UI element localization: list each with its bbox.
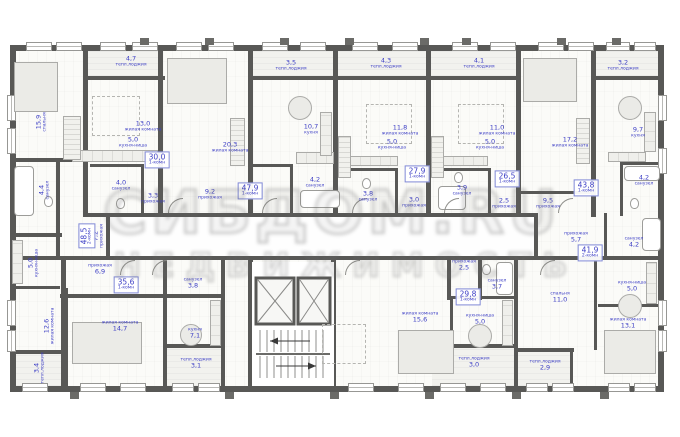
room-label: 12,6жилая комната [44, 308, 57, 345]
room-name: жилая комната [125, 128, 162, 133]
room-name: прихожая [536, 205, 560, 210]
wall-stub [425, 392, 434, 399]
wall [333, 76, 431, 80]
apartment-type: 1-комн [409, 176, 426, 181]
room-label: спальня11,0 [550, 292, 569, 305]
apartment-area-badge: 43,81-комн [574, 179, 599, 196]
window [100, 42, 126, 51]
apartment-type: 2-комн [89, 228, 94, 245]
room-label: 4,2санузел [306, 177, 325, 190]
room-label: 5,0кухня-ниша [119, 137, 147, 150]
kitchen-counter [210, 300, 221, 346]
room-label: 10,7кухня [304, 124, 318, 137]
room-area: 5,0 [466, 319, 494, 326]
wall [426, 45, 431, 217]
room-area: 2,5 [452, 265, 476, 272]
room-name: кухня-ниша [378, 146, 406, 151]
room-area: 3,5 [275, 60, 306, 67]
room-label: жилая комната13,1 [610, 318, 647, 331]
wall [534, 213, 538, 260]
window [22, 383, 48, 392]
room-area: 15,6 [402, 317, 439, 324]
window [526, 383, 548, 392]
bathtub [642, 218, 661, 251]
bathtub [300, 190, 340, 208]
room-area: 2,5 [492, 198, 516, 205]
room-label: 15,9спальня [36, 112, 49, 131]
bed-outline [322, 324, 366, 364]
room-name: санузел [635, 182, 654, 187]
kitchen-counter [646, 262, 657, 304]
wall [83, 45, 88, 217]
bed [167, 58, 227, 104]
room-label: 4,1тепл.лоджия [463, 58, 494, 71]
room-label: кухня-ниша5,0 [466, 314, 494, 327]
wall-stub [600, 392, 609, 399]
room-label: 3,3прихожая [141, 193, 165, 206]
room-name: тепл.лоджия [275, 67, 306, 72]
room-name: санузел [306, 184, 325, 189]
wall [163, 260, 167, 388]
wall-stub [345, 38, 354, 45]
wall [395, 168, 398, 216]
room-label: жилая комната14,7 [102, 321, 139, 334]
room-area: 2,9 [529, 365, 560, 372]
wall-stub [140, 38, 149, 45]
window [348, 383, 374, 392]
room-name: жилая комната [51, 308, 56, 345]
room-area: 4,2 [625, 242, 644, 249]
room-name: тепл.лоджия [463, 65, 494, 70]
wardrobe [63, 116, 81, 160]
room-name: прихожая [198, 196, 222, 201]
room-area: 11,0 [479, 125, 516, 132]
window [120, 383, 146, 392]
window [634, 42, 656, 51]
wall [106, 213, 110, 260]
room-name: санузел [453, 192, 472, 197]
room-label: кухня-ниша5,0 [618, 281, 646, 294]
room-label: 3,5тепл.лоджия [275, 60, 306, 73]
room-label: кухня7,1 [188, 328, 202, 341]
kitchen-counter [320, 112, 332, 156]
room-area: 4,4 [39, 181, 46, 200]
toilet [630, 198, 639, 209]
wall [514, 256, 518, 388]
room-label: 5,0кухня-ниша [28, 249, 41, 277]
room-area: 15,9 [36, 112, 43, 131]
room-name: прихожая [492, 205, 516, 210]
room-area: 4,2 [306, 177, 325, 184]
apartment-area-badge: 47,91-комн [238, 182, 263, 199]
room-name: кухня-ниша [119, 144, 147, 149]
room-label: 5,0кухня-ниша [378, 139, 406, 152]
room-area: 7,1 [188, 333, 202, 340]
room-area: 4,0 [112, 180, 131, 187]
room-area: 11,0 [550, 297, 569, 304]
room-name: тепл.лоджия [607, 67, 638, 72]
window [634, 383, 656, 392]
apartment-type: 1-комн [578, 190, 595, 195]
room-label: 13,0жилая комната [125, 121, 162, 134]
wall [253, 164, 293, 167]
room-label: прихожая6,9 [88, 264, 112, 277]
room-label: жилая комната15,6 [402, 312, 439, 325]
room-area: 3,4 [34, 352, 41, 383]
wall-stub [557, 38, 566, 45]
wall [516, 348, 574, 352]
window [352, 42, 378, 51]
room-area: 13,0 [125, 121, 162, 128]
room-label: 3,4тепл.лоджия [34, 352, 47, 383]
room-area: 3,8 [359, 191, 378, 198]
room-name: санузел [112, 187, 131, 192]
room-label: 9,7кухня [631, 127, 645, 140]
room-area: 20,3 [212, 142, 249, 149]
bathtub [14, 166, 34, 216]
wall-stub [205, 38, 214, 45]
room-area: 3,7 [488, 284, 507, 291]
wall [60, 294, 165, 298]
bed [523, 58, 577, 102]
window [440, 383, 466, 392]
window [392, 42, 418, 51]
dining-table [618, 96, 642, 120]
window [608, 383, 630, 392]
apartment-area-badge: 27,91-комн [405, 165, 430, 182]
room-area: 3,1 [180, 363, 211, 370]
apartment-area-badge: 35,61-комн [114, 276, 139, 293]
room-label: тепл.лоджия2,9 [529, 360, 560, 373]
room-area: 5,0 [378, 139, 406, 146]
wall-stub [462, 38, 471, 45]
wall [56, 158, 60, 257]
room-name: прихожая [100, 224, 105, 248]
window [658, 300, 667, 326]
room-label: 4,7тепл.лоджия [115, 56, 146, 69]
room-label: 3,9санузел [453, 185, 472, 198]
wall [61, 256, 66, 388]
window [26, 42, 52, 51]
corridor-area [110, 217, 534, 256]
apartment-type: 1-комн [242, 193, 259, 198]
bed [398, 330, 454, 374]
room-name: прихожая [141, 200, 165, 205]
dining-table [468, 324, 492, 348]
room-area: 3,2 [607, 60, 638, 67]
kitchen-counter [12, 240, 23, 284]
room-area: 4,7 [115, 56, 146, 63]
room-name: кухня [304, 131, 318, 136]
wall [604, 213, 607, 260]
wall-stub [512, 392, 521, 399]
room-area: 6,9 [88, 269, 112, 276]
room-name: жилая комната [479, 132, 516, 137]
wall [83, 76, 165, 80]
room-label: 9,2прихожая [198, 189, 222, 202]
room-area: 5,7 [564, 237, 588, 244]
room-label: 9,5прихожая [536, 198, 560, 211]
wall [620, 162, 623, 216]
room-name: санузел [46, 181, 51, 200]
room-area: 4,2 [635, 175, 654, 182]
kitchen-counter [608, 152, 646, 162]
apartment-area-badge: 30,01-комн [145, 151, 170, 168]
room-label: санузел4,2 [625, 237, 644, 250]
wall [591, 76, 662, 80]
room-label: 2,5прихожая [492, 198, 516, 211]
room-name: жилая комната [382, 132, 419, 137]
wall [83, 213, 538, 217]
apartment-type: 1-комн [499, 181, 516, 186]
window [568, 42, 594, 51]
room-area: 5,0 [119, 137, 147, 144]
toilet [116, 198, 125, 209]
toilet [362, 178, 371, 189]
window [480, 383, 506, 392]
bed [14, 62, 58, 112]
wardrobe [338, 136, 351, 178]
room-area: 3,3 [141, 193, 165, 200]
room-name: спальня [43, 112, 48, 131]
room-label: 11,8жилая комната [382, 125, 419, 138]
room-label: 17,2жилая комната [552, 137, 589, 150]
room-area: 4,3 [370, 58, 401, 65]
room-area: 3,0 [458, 362, 489, 369]
room-name: тепл.лоджия [370, 65, 401, 70]
room-area: 9,7 [631, 127, 645, 134]
room-area: 3,9 [453, 185, 472, 192]
wall-stub [70, 392, 79, 399]
window [80, 383, 106, 392]
room-area: 9,5 [536, 198, 560, 205]
dining-table [618, 294, 642, 318]
room-area: 13,1 [610, 323, 647, 330]
room-area: 17,2 [552, 137, 589, 144]
wall-stub [330, 392, 339, 399]
room-label: 4,0санузел [112, 180, 131, 193]
room-name: кухня-ниша [476, 146, 504, 151]
window [7, 128, 16, 154]
room-name: тепл.лоджия [41, 352, 46, 383]
wall [570, 348, 573, 388]
room-label: 20,3жилая комната [212, 142, 249, 155]
room-area: 10,7 [304, 124, 318, 131]
apartment-type: 2-комн [582, 255, 599, 260]
room-area: 14,7 [102, 326, 139, 333]
window [552, 383, 574, 392]
room-label: 4,3тепл.лоджия [370, 58, 401, 71]
room-label: тепл.лоджия3,0 [458, 357, 489, 370]
apartment-type: 1-комн [118, 287, 135, 292]
room-area: 5,0 [618, 286, 646, 293]
apartment-area-badge: 48,52-комн [78, 224, 95, 249]
room-name: кухня [631, 134, 645, 139]
wall [426, 76, 521, 80]
wall-stub [420, 38, 429, 45]
wall [10, 286, 60, 289]
room-label: 3,2тепл.лоджия [607, 60, 638, 73]
window [398, 383, 424, 392]
wall-stub [280, 38, 289, 45]
bed [604, 330, 656, 374]
kitchen-counter [502, 300, 513, 346]
room-label: санузел3,7 [488, 279, 507, 292]
room-label: 4,2санузел [635, 175, 654, 188]
window [490, 42, 516, 51]
wall [488, 168, 491, 216]
apartment-type: 1-комн [149, 162, 166, 167]
room-area: 3,0 [402, 197, 426, 204]
room-label: 3,0прихожая [402, 197, 426, 210]
room-name: тепл.лоджия [115, 63, 146, 68]
wall [10, 233, 62, 237]
room-name: жилая комната [212, 149, 249, 154]
room-area: 12,6 [44, 308, 51, 345]
room-name: прихожая [402, 204, 426, 209]
room-label: 11,0жилая комната [479, 125, 516, 138]
toilet [454, 172, 463, 183]
room-area: 4,1 [463, 58, 494, 65]
window [658, 95, 667, 121]
room-label: прихожая2,5 [452, 260, 476, 273]
apartment-area-badge: 29,81-комн [456, 288, 481, 305]
room-area: 11,8 [382, 125, 419, 132]
apartment-type: 1-комн [460, 299, 477, 304]
apartment-area-badge: 41,92-комн [578, 244, 603, 261]
room-name: жилая комната [552, 144, 589, 149]
wall-stub [612, 38, 621, 45]
room-name: кухня-ниша [35, 249, 40, 277]
room-label: 4,4санузел [39, 181, 52, 200]
window [176, 42, 202, 51]
wall [90, 164, 144, 167]
floor-plan: 15,9спальня4,7тепл.лоджия13,0жилая комна… [0, 0, 680, 437]
room-area: 5,0 [476, 139, 504, 146]
wall-stub [225, 392, 234, 399]
window [172, 383, 194, 392]
toilet [482, 264, 491, 275]
room-label: 3,8санузел [359, 191, 378, 204]
wall [221, 256, 225, 388]
apartment-area-badge: 26,51-комн [495, 170, 520, 187]
wall [594, 258, 597, 350]
dining-table [288, 96, 312, 120]
wall [163, 294, 223, 298]
room-label: санузел3,8 [184, 278, 203, 291]
window [7, 330, 16, 352]
window [300, 42, 326, 51]
window [198, 383, 220, 392]
wall [248, 76, 338, 80]
window [658, 330, 667, 352]
room-area: 9,2 [198, 189, 222, 196]
wall [290, 164, 293, 216]
room-name: санузел [359, 198, 378, 203]
wall [141, 164, 144, 216]
kitchen-counter [644, 112, 656, 152]
room-area: 5,0 [28, 249, 35, 277]
wall [447, 256, 451, 300]
room-label: 5,0кухня-ниша [476, 139, 504, 152]
window [7, 300, 16, 326]
window [56, 42, 82, 51]
wardrobe [431, 136, 444, 178]
room-area: 3,8 [184, 283, 203, 290]
room-label: тепл.лоджия3,1 [180, 358, 211, 371]
room-label: прихожая5,7 [564, 232, 588, 245]
